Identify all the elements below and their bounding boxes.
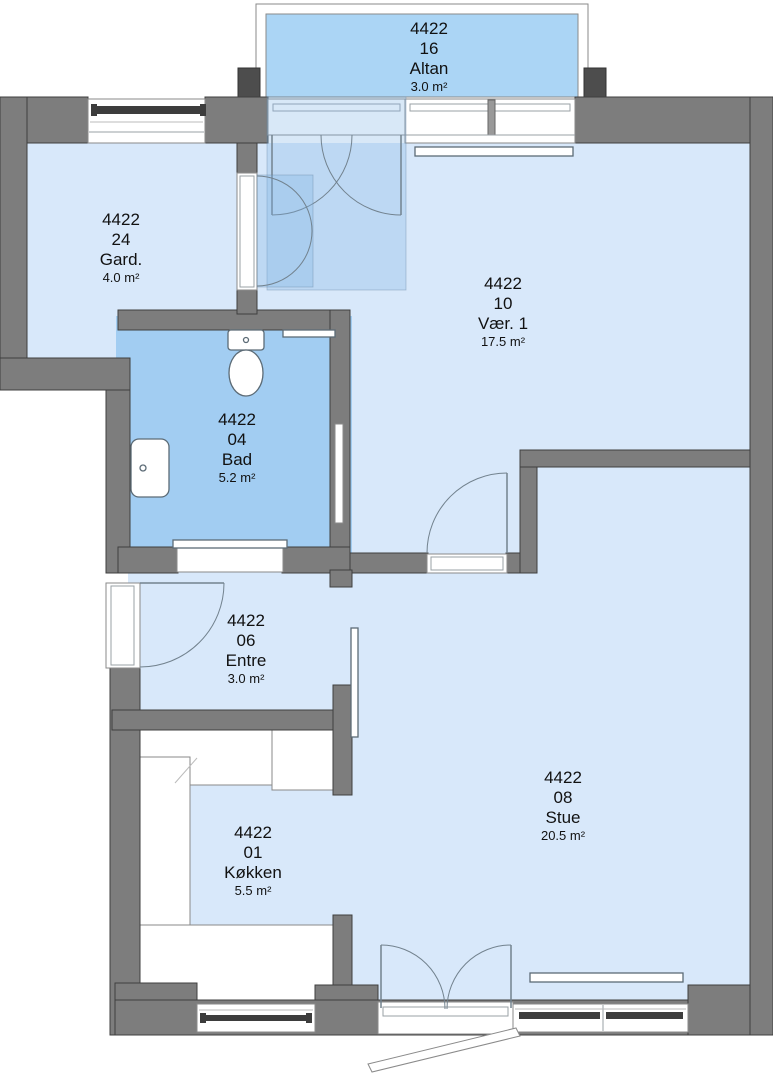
balcony-post-left: [238, 68, 260, 97]
bathroom-shelf: [283, 330, 335, 337]
toilet-icon: [228, 330, 264, 396]
room-id: 4422: [218, 410, 256, 430]
radiator-stue: [530, 973, 683, 982]
room-label-altan: 4422 16 Altan 3.0 m²: [410, 19, 449, 95]
room-id: 4422: [541, 768, 585, 788]
floor-plan: 4422 16 Altan 3.0 m² 4422 24 Gard. 4.0 m…: [0, 0, 773, 1080]
room-number: 06: [226, 631, 267, 651]
room-label-entre: 4422 06 Entre 3.0 m²: [226, 611, 267, 687]
radiator-vaer1: [415, 147, 573, 156]
room-area: 3.0 m²: [410, 79, 449, 95]
room-name: Altan: [410, 59, 449, 79]
room-number: 10: [478, 294, 528, 314]
window-koekken: [197, 1004, 315, 1032]
sink-icon: [131, 439, 169, 497]
room-name: Gard.: [100, 250, 143, 270]
room-area: 5.2 m²: [218, 470, 256, 486]
room-number: 24: [100, 230, 143, 250]
room-name: Bad: [218, 450, 256, 470]
room-label-bad: 4422 04 Bad 5.2 m²: [218, 410, 256, 486]
room-number: 08: [541, 788, 585, 808]
room-number: 04: [218, 430, 256, 450]
room-number: 16: [410, 39, 449, 59]
window-vaer1: [405, 99, 575, 143]
bad-sliding-door: [173, 540, 287, 572]
room-name: Køkken: [224, 863, 282, 883]
room-area: 5.5 m²: [224, 883, 282, 899]
bathroom-wall-niche: [335, 424, 343, 523]
room-label-koekken: 4422 01 Køkken 5.5 m²: [224, 823, 282, 899]
room-stue-floor-upper: [530, 460, 760, 573]
room-id: 4422: [224, 823, 282, 843]
room-id: 4422: [226, 611, 267, 631]
balcony-post-right: [584, 68, 606, 97]
room-label-vaer1: 4422 10 Vær. 1 17.5 m²: [478, 274, 528, 350]
room-name: Stue: [541, 808, 585, 828]
floor-plan-drawing: [0, 0, 773, 1080]
window-gard: [88, 99, 206, 143]
gard-door-swing-zone: [257, 175, 313, 287]
room-label-stue: 4422 08 Stue 20.5 m²: [541, 768, 585, 844]
room-number: 01: [224, 843, 282, 863]
radiator-entre: [351, 628, 358, 737]
room-name: Vær. 1: [478, 314, 528, 334]
room-area: 17.5 m²: [478, 334, 528, 350]
room-label-gard: 4422 24 Gard. 4.0 m²: [100, 210, 143, 286]
room-area: 20.5 m²: [541, 828, 585, 844]
room-area: 4.0 m²: [100, 270, 143, 286]
window-stue: [513, 1004, 688, 1032]
room-id: 4422: [410, 19, 449, 39]
room-area: 3.0 m²: [226, 671, 267, 687]
gard-double-door: [237, 173, 313, 290]
room-id: 4422: [100, 210, 143, 230]
room-name: Entre: [226, 651, 267, 671]
room-id: 4422: [478, 274, 528, 294]
